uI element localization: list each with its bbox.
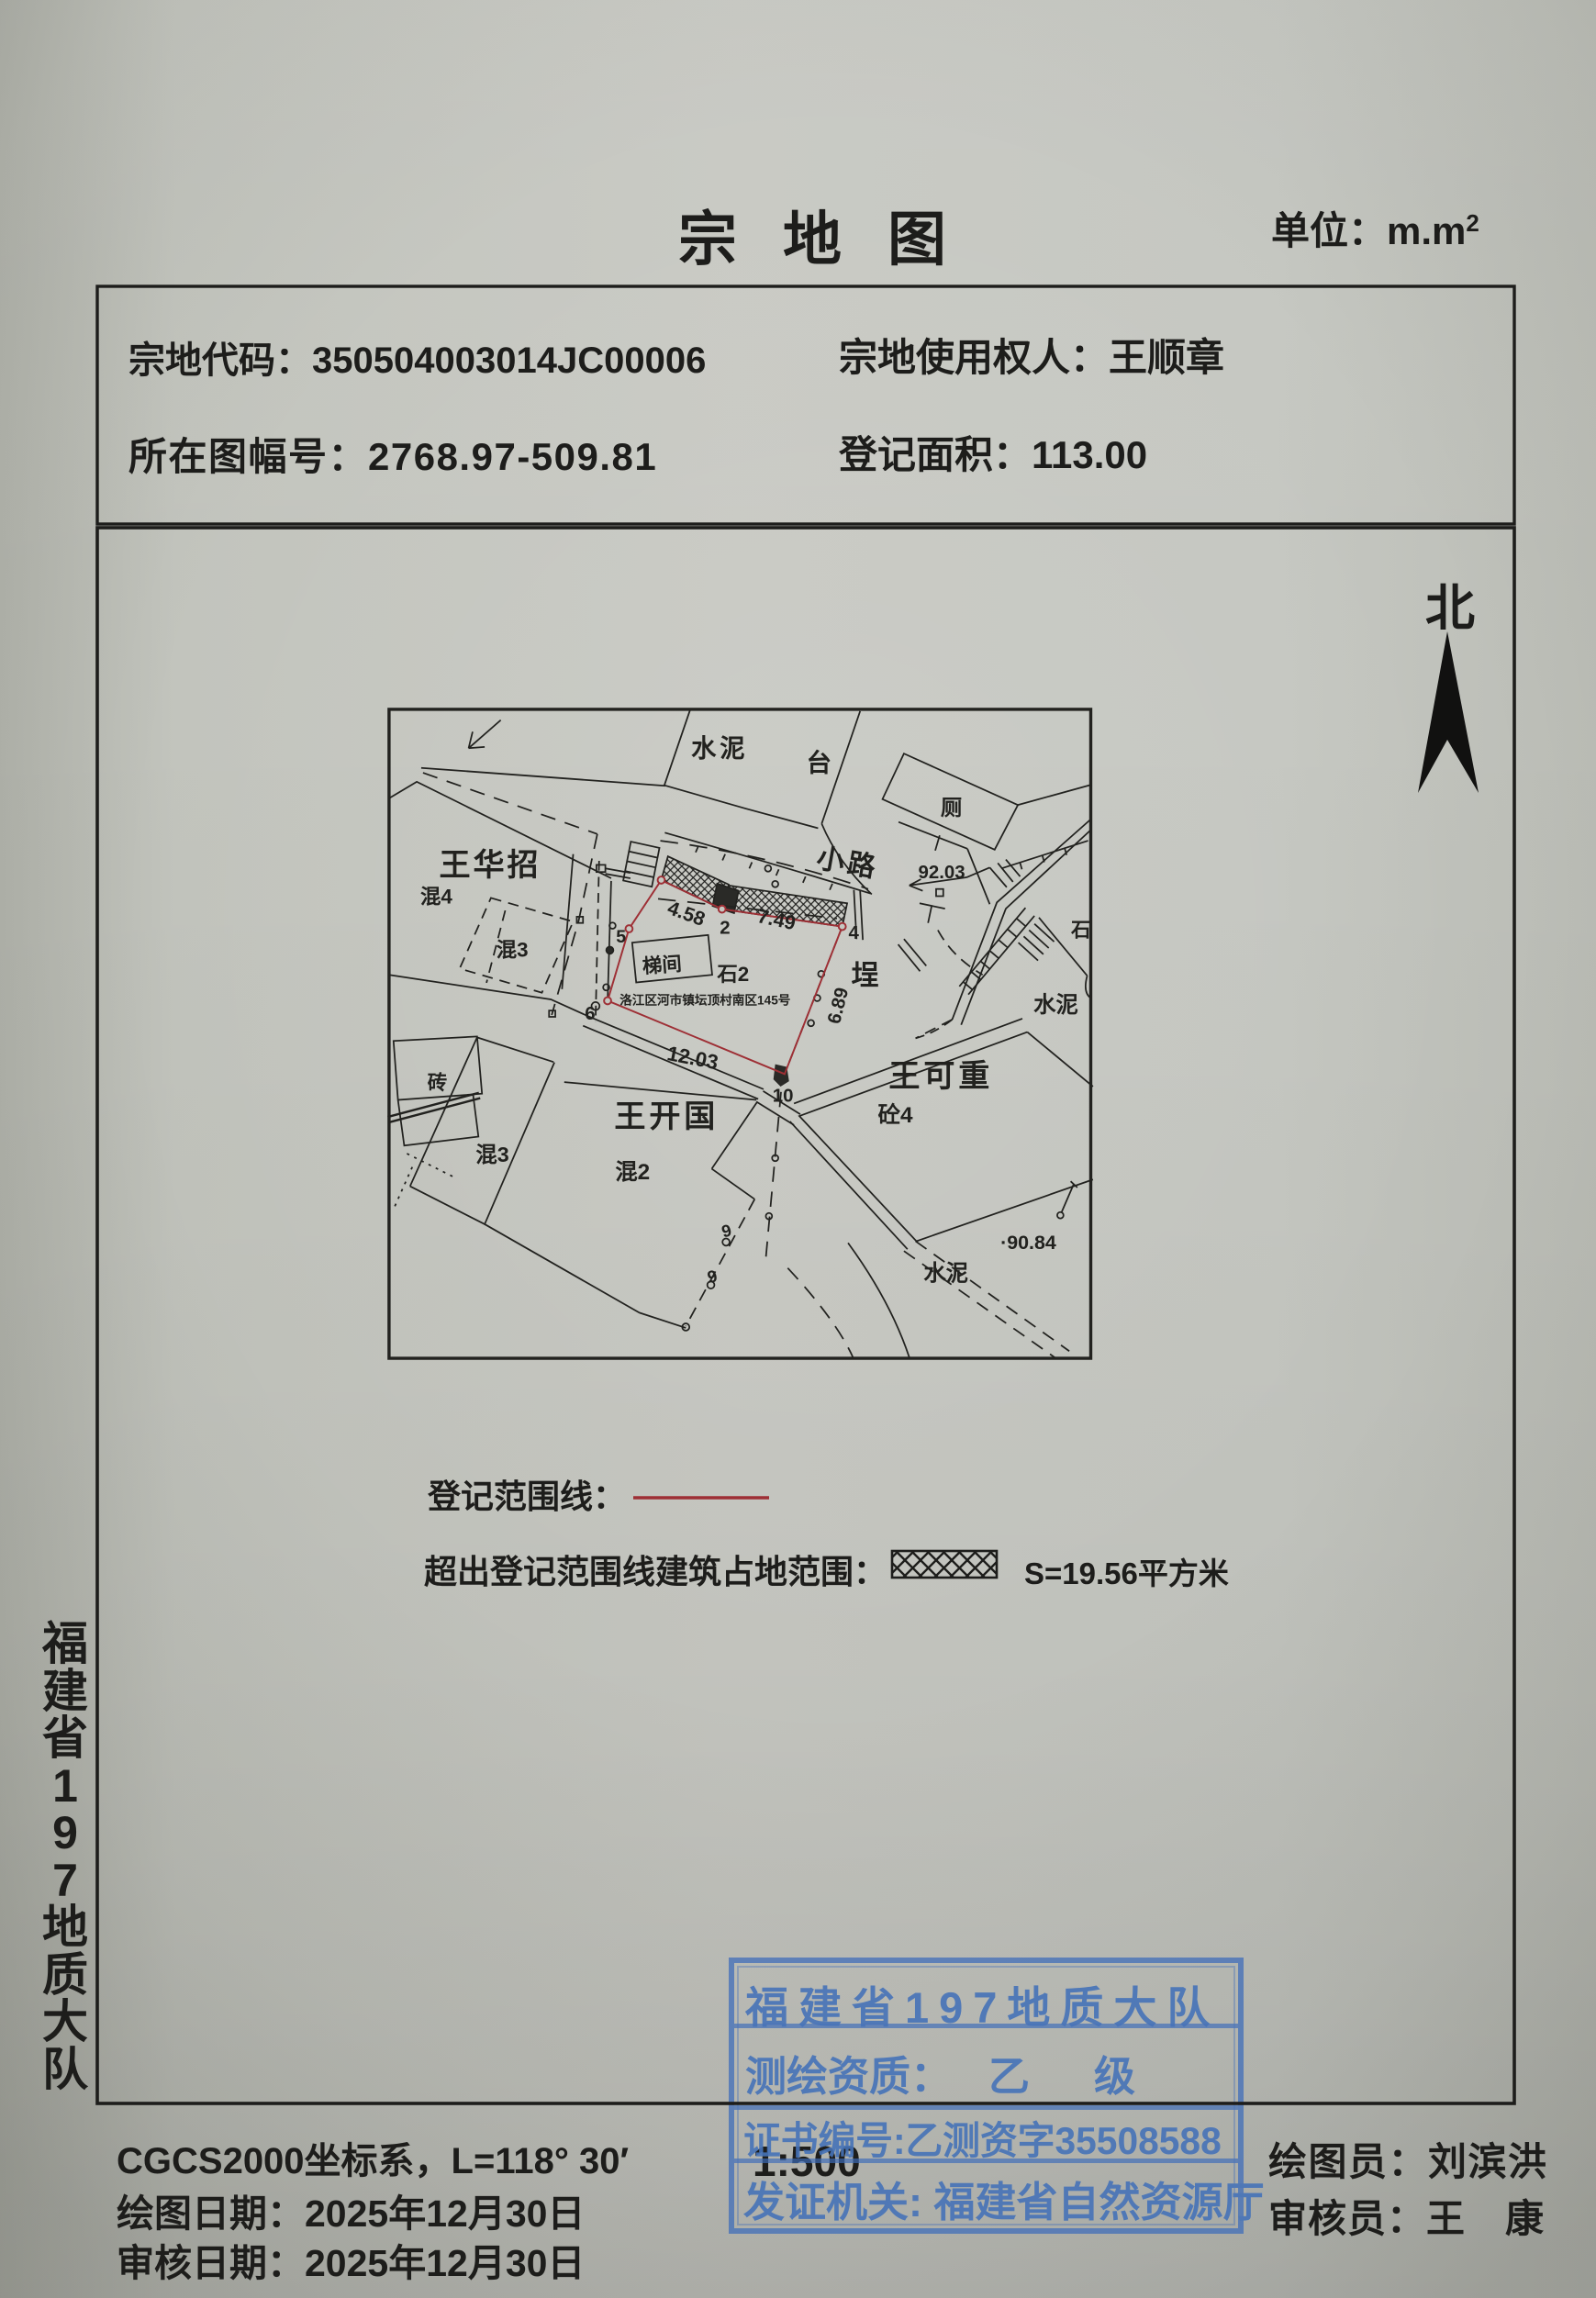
svg-text:水泥: 水泥 [1033, 993, 1078, 1018]
svg-text:石: 石 [1070, 919, 1090, 941]
svg-text:5: 5 [616, 927, 626, 947]
svg-text:王华招: 王华招 [439, 848, 541, 883]
svg-text:厕: 厕 [941, 796, 962, 820]
svg-text:9: 9 [720, 1221, 733, 1242]
svg-text:梯间: 梯间 [642, 952, 682, 977]
svg-text:混2: 混2 [615, 1160, 650, 1185]
svg-text:王开国: 王开国 [614, 1099, 719, 1134]
svg-text:石2: 石2 [716, 963, 749, 986]
svg-text:12.03: 12.03 [665, 1042, 720, 1074]
svg-text:10: 10 [773, 1086, 794, 1107]
svg-text:小路: 小路 [814, 842, 881, 884]
svg-text:王可重: 王可重 [888, 1059, 993, 1094]
svg-text:92.03: 92.03 [919, 862, 965, 883]
svg-text:砖: 砖 [428, 1071, 447, 1094]
svg-text:6.89: 6.89 [823, 986, 853, 1026]
svg-text:混4: 混4 [420, 885, 452, 908]
svg-text:·90.84: ·90.84 [1000, 1232, 1056, 1254]
svg-text:埕: 埕 [851, 960, 878, 991]
svg-text:2: 2 [720, 917, 730, 938]
svg-text:砼4: 砼4 [878, 1103, 913, 1128]
svg-text:水泥: 水泥 [691, 734, 748, 763]
svg-text:混3: 混3 [497, 939, 529, 962]
svg-text:混3: 混3 [475, 1143, 508, 1166]
svg-text:水泥: 水泥 [923, 1261, 968, 1286]
svg-text:4.58: 4.58 [664, 897, 708, 931]
svg-text:4: 4 [849, 922, 860, 943]
svg-text:6: 6 [585, 1003, 595, 1024]
svg-text:洛江区河市镇坛顶村南区145号: 洛江区河市镇坛顶村南区145号 [619, 992, 790, 1007]
svg-text:台: 台 [807, 749, 831, 777]
